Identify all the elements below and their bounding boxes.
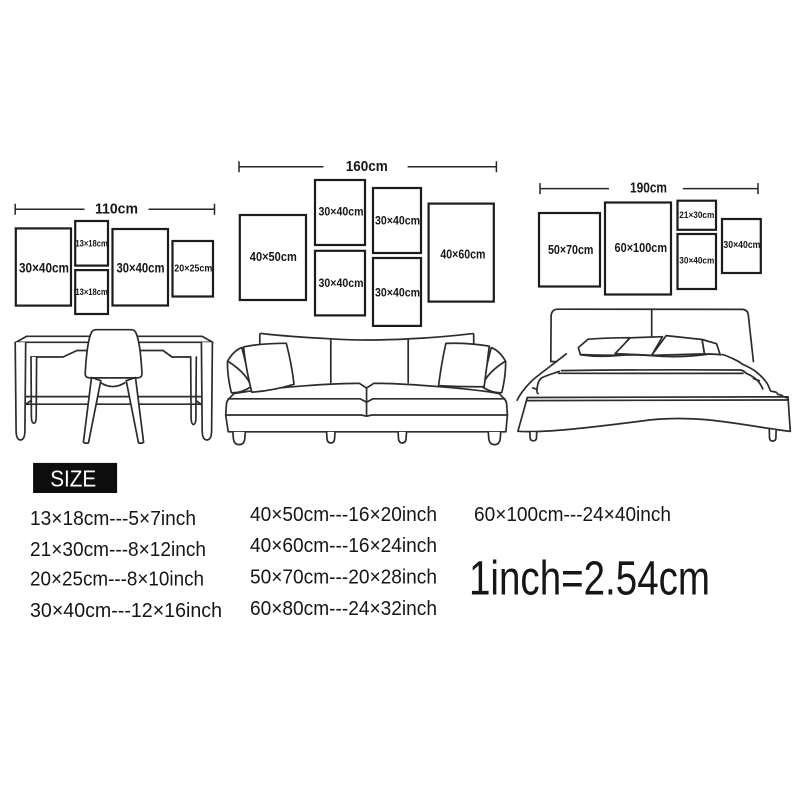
svg-text:50×70cm---20×28inch: 50×70cm---20×28inch: [250, 567, 437, 589]
svg-text:30×40cm: 30×40cm: [319, 205, 364, 219]
svg-text:110cm: 110cm: [95, 200, 138, 217]
svg-text:13×18cm: 13×18cm: [75, 287, 108, 298]
svg-text:30×40cm: 30×40cm: [375, 285, 420, 299]
svg-text:40×50cm---16×20inch: 40×50cm---16×20inch: [250, 504, 437, 526]
svg-text:30×40cm: 30×40cm: [375, 213, 420, 227]
svg-text:30×40cm: 30×40cm: [319, 276, 364, 290]
svg-text:13×18cm---5×7inch: 13×18cm---5×7inch: [30, 508, 196, 530]
svg-text:60×100cm: 60×100cm: [615, 240, 668, 255]
svg-text:21×30cm---8×12inch: 21×30cm---8×12inch: [30, 539, 206, 561]
svg-text:30×40cm: 30×40cm: [723, 240, 760, 251]
svg-text:13×18cm: 13×18cm: [75, 239, 108, 250]
svg-text:30×40cm: 30×40cm: [117, 261, 165, 276]
svg-text:20×25cm---8×10inch: 20×25cm---8×10inch: [30, 569, 204, 591]
svg-text:60×100cm---24×40inch: 60×100cm---24×40inch: [474, 504, 671, 526]
svg-text:40×60cm: 40×60cm: [440, 247, 485, 261]
svg-text:190cm: 190cm: [630, 180, 667, 197]
svg-text:40×60cm---16×24inch: 40×60cm---16×24inch: [250, 535, 437, 557]
svg-text:SIZE: SIZE: [50, 466, 96, 492]
svg-text:40×50cm: 40×50cm: [250, 250, 297, 264]
svg-text:21×30cm: 21×30cm: [679, 210, 714, 221]
svg-text:50×70cm: 50×70cm: [548, 243, 594, 257]
svg-text:20×25cm: 20×25cm: [174, 262, 212, 274]
svg-text:30×40cm---12×16inch: 30×40cm---12×16inch: [30, 600, 222, 622]
svg-text:60×80cm---24×32inch: 60×80cm---24×32inch: [250, 598, 437, 620]
svg-text:30×40cm: 30×40cm: [679, 255, 714, 266]
svg-text:160cm: 160cm: [346, 158, 388, 175]
svg-text:1inch=2.54cm: 1inch=2.54cm: [469, 553, 710, 606]
svg-text:30×40cm: 30×40cm: [19, 261, 69, 276]
